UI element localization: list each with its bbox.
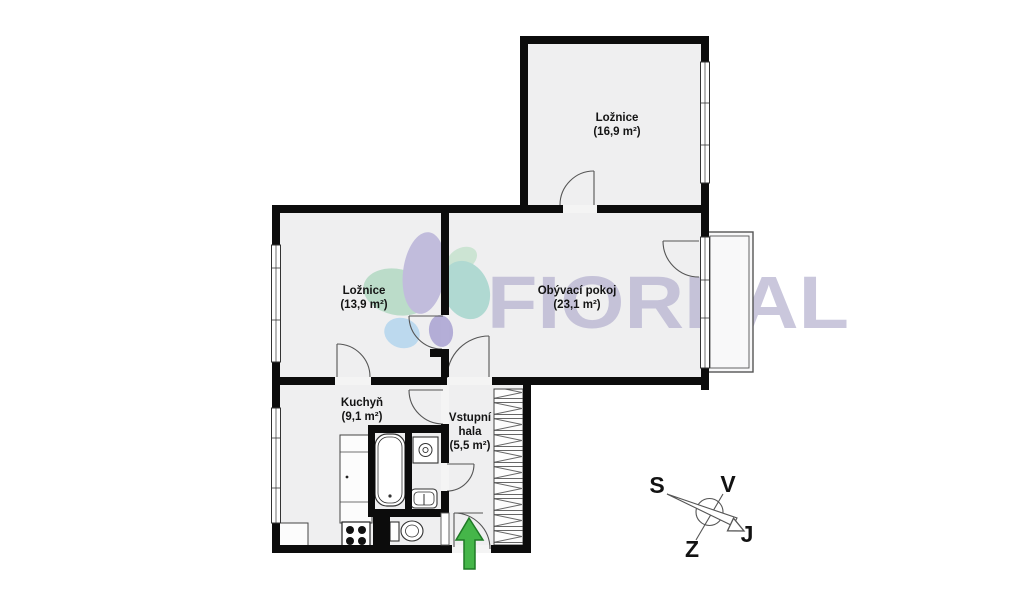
bedroom-top-floor — [528, 44, 701, 205]
balcony — [706, 232, 753, 372]
compass-north-label: S — [649, 472, 664, 498]
hall-label-line1: Vstupní — [449, 412, 492, 424]
bedroom-top-area: (16,9 m²) — [593, 126, 640, 138]
kitchen-counter — [340, 435, 372, 523]
hall-area: (5,5 m²) — [450, 440, 491, 452]
toilet — [390, 521, 423, 541]
compass-south-label: J — [741, 521, 754, 547]
kitchen-label: Kuchyň — [341, 397, 383, 409]
bedroom-top-label: Ložnice — [596, 112, 639, 124]
stove — [342, 522, 370, 548]
living-room-area: (23,1 m²) — [553, 299, 600, 311]
bathtub — [375, 434, 405, 506]
living-room-label: Obývací pokoj — [538, 285, 617, 297]
window-kitchen — [272, 408, 281, 523]
kitchen-area: (9,1 m²) — [342, 411, 383, 423]
window-bedroom-top — [701, 62, 710, 183]
bedroom-left-area: (13,9 m²) — [340, 299, 387, 311]
sink — [411, 489, 437, 508]
compass-rose-icon: S V Z J — [649, 471, 753, 562]
door-wc — [441, 513, 449, 545]
kitchen-cabinet — [278, 523, 308, 548]
compass-west-label: Z — [685, 536, 699, 562]
window-bedroom-left — [272, 245, 281, 362]
watermark-brand-text: FIOREAL — [487, 261, 849, 344]
built-in-wardrobe — [494, 389, 523, 545]
washing-machine — [413, 437, 438, 463]
compass-east-label: V — [720, 471, 736, 497]
window-living-balcony — [701, 237, 710, 368]
hall-label-line2: hala — [458, 426, 482, 438]
floor-plan-drawing: FIOREAL — [0, 0, 1024, 591]
floor-plan-page: FIOREAL — [0, 0, 1024, 591]
bedroom-left-label: Ložnice — [343, 285, 386, 297]
